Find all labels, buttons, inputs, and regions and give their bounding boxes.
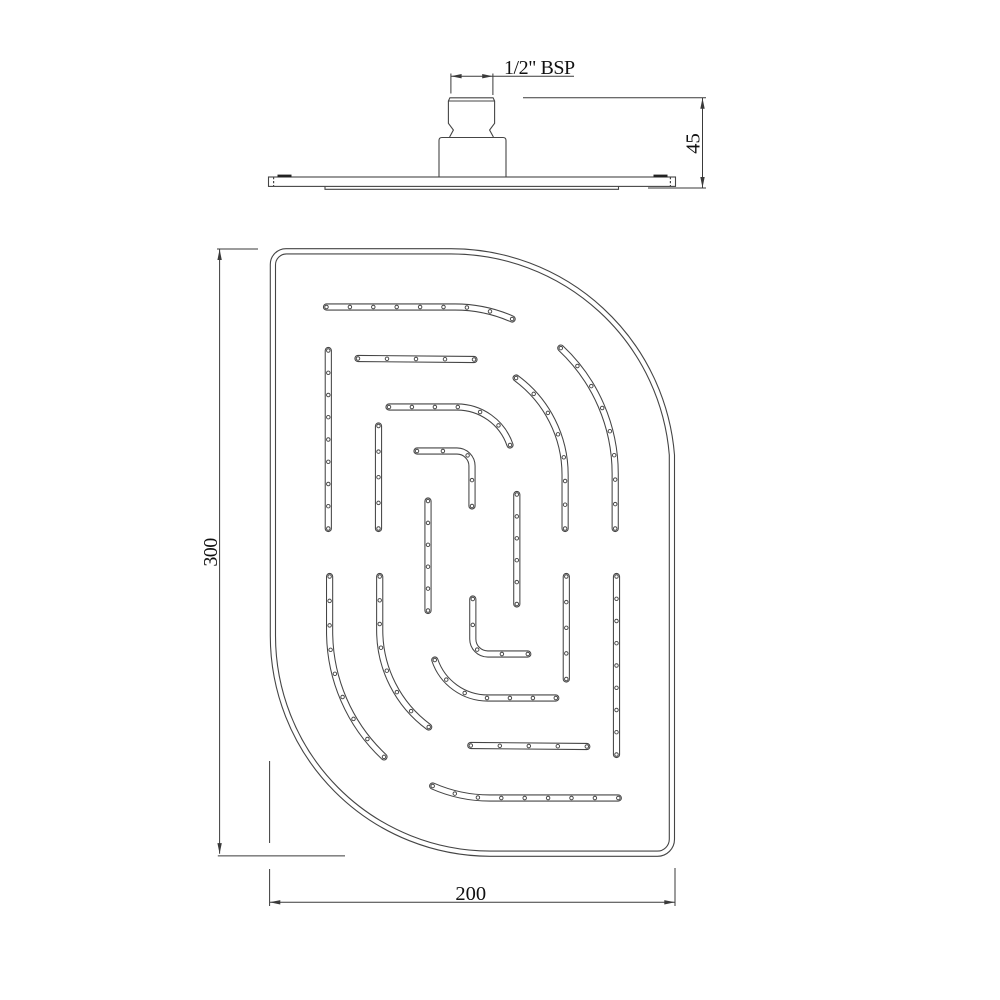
- svg-text:1/2" BSP: 1/2" BSP: [504, 57, 575, 79]
- svg-text:45: 45: [682, 133, 704, 154]
- svg-text:200: 200: [455, 883, 486, 905]
- svg-text:300: 300: [200, 538, 222, 567]
